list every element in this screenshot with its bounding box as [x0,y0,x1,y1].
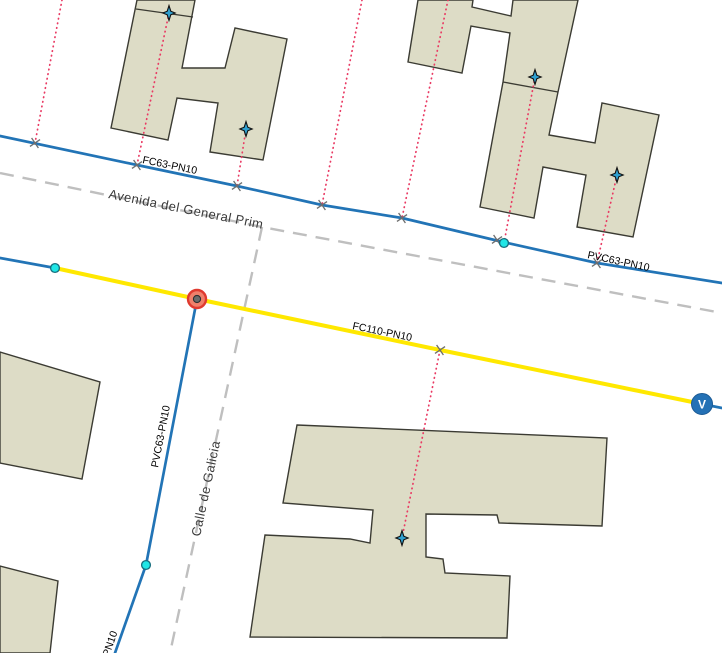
valve-symbol[interactable]: V [692,394,713,415]
building-bottom-center[interactable] [250,425,607,638]
junction-node-icon[interactable] [51,264,60,273]
junction-node-icon[interactable] [500,239,509,248]
building-bottom-left-corner[interactable] [0,566,58,653]
valve-letter: V [698,398,706,412]
building-left-edge[interactable] [0,352,100,479]
junction-node-icon[interactable] [142,561,151,570]
building-top-right-h[interactable] [408,0,659,237]
street-label-calle: Calle de Galicia [188,439,223,538]
street-line-calle [170,227,262,653]
map-canvas[interactable]: V FC63-PN10 PVC63-PN10 FC110-PN10 PVC63-… [0,0,722,653]
street-label-avenida: Avenida del General Prim [107,186,264,232]
pipe-label-fc63: FC63-PN10 [141,154,198,177]
service-connection-line[interactable] [322,0,362,205]
service-connection-line[interactable] [35,0,62,143]
highlighted-node-icon[interactable] [188,290,206,308]
pipe-nodes [51,239,509,570]
building-top-left-h[interactable] [111,0,287,160]
pipe-blue-left-stub[interactable] [0,258,55,268]
pipe-pvc63-vertical[interactable] [115,299,197,653]
pipe-label-pvc63-upper: PVC63-PN10 [586,249,650,274]
pipe-label-fc110: FC110-PN10 [351,320,413,344]
